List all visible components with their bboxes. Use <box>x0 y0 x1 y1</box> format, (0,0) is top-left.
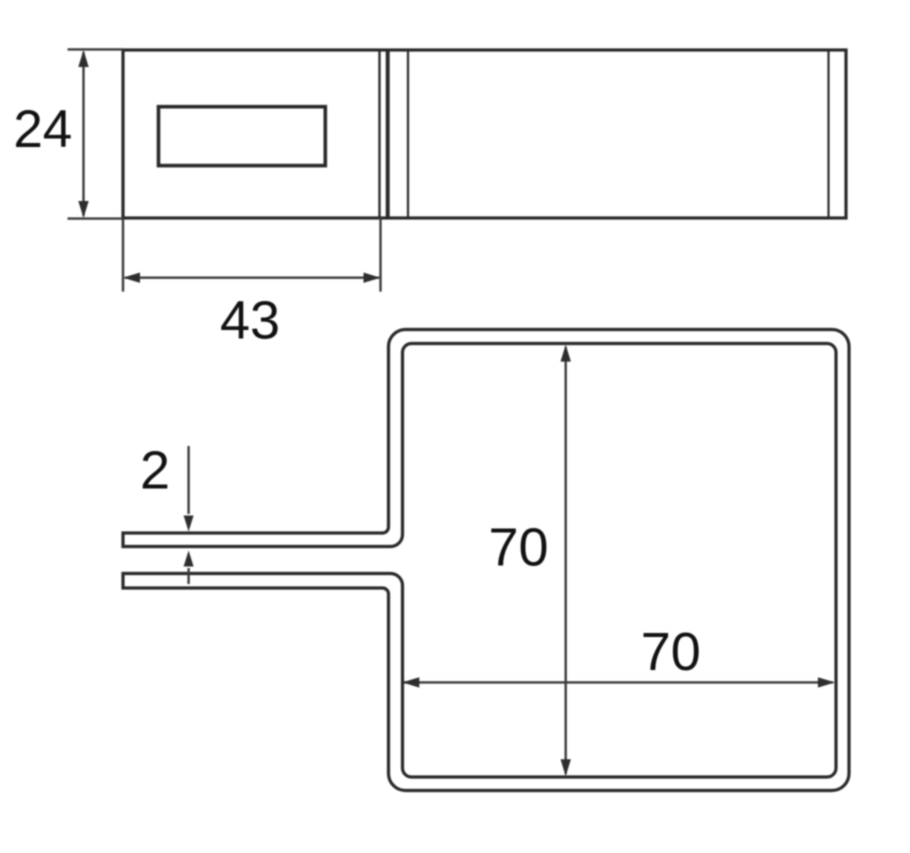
svg-text:70: 70 <box>488 517 548 577</box>
svg-text:70: 70 <box>641 622 701 682</box>
svg-text:43: 43 <box>220 291 280 351</box>
svg-text:24: 24 <box>13 100 72 159</box>
svg-text:2: 2 <box>140 441 170 501</box>
